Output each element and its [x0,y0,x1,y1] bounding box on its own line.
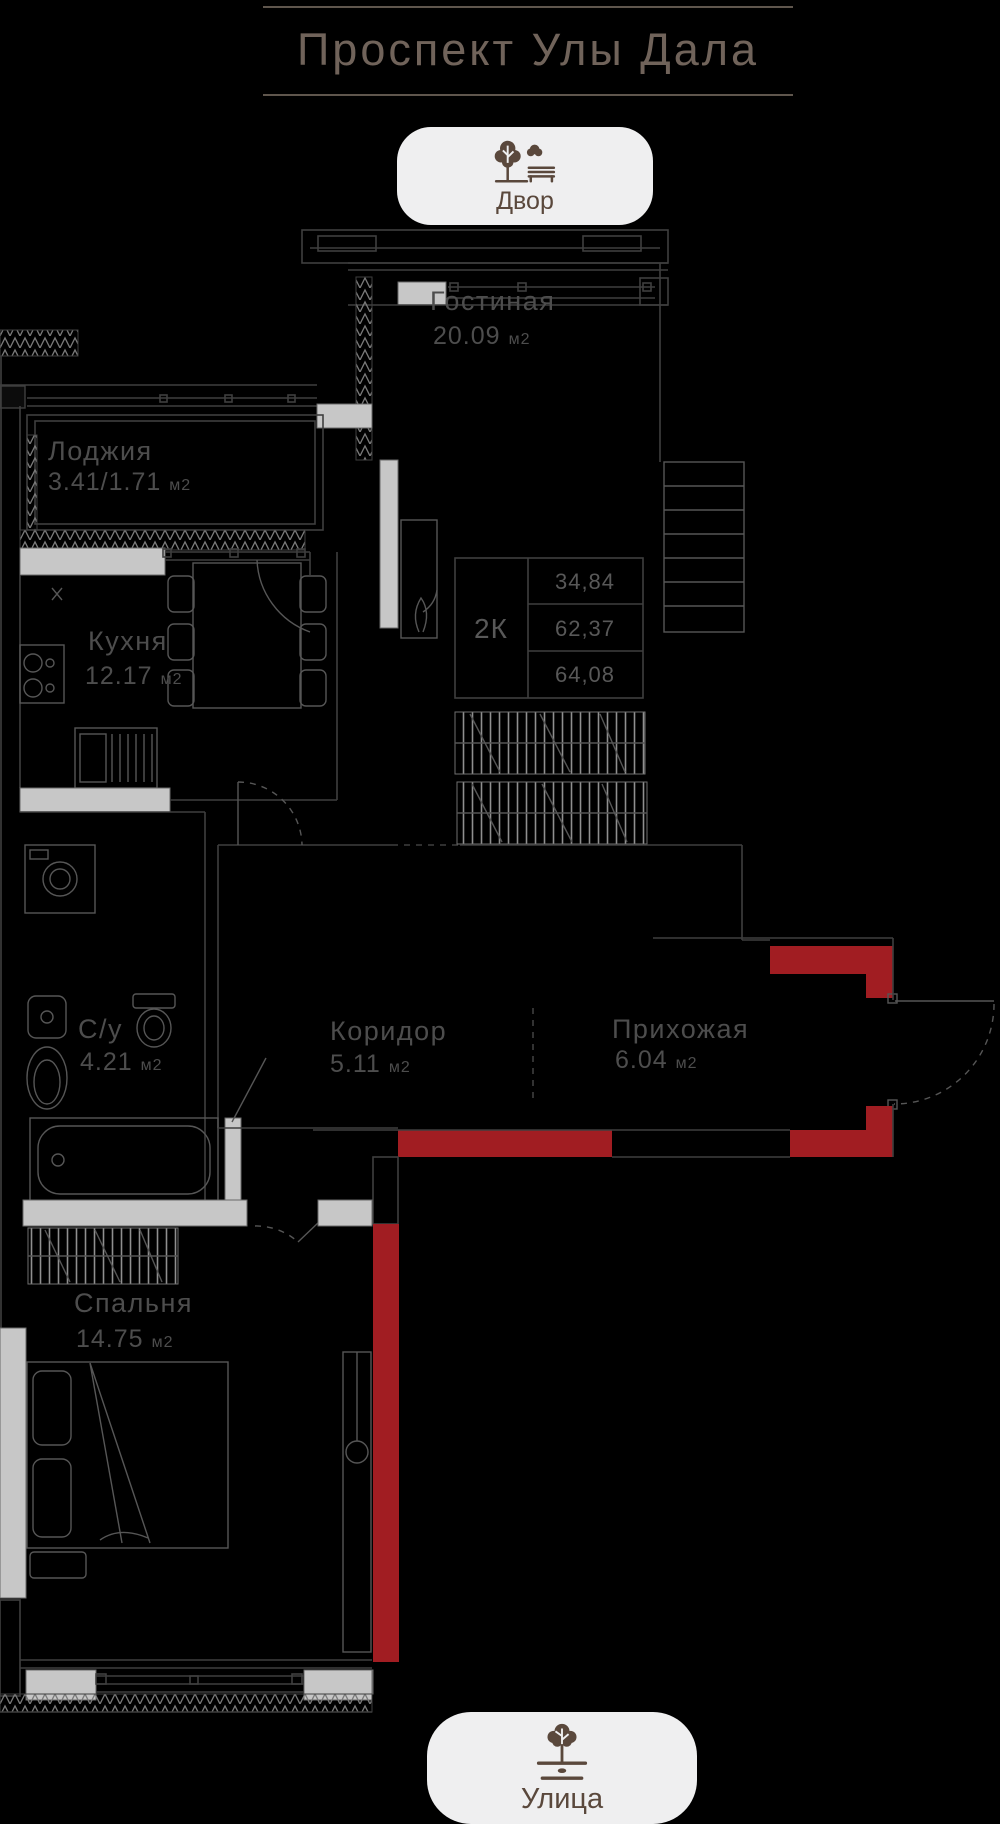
pedestal-sink-icon [27,1047,67,1109]
bathroom-area [20,812,241,1202]
floor-plan: 2К 34,84 62,37 64,08 [0,0,1000,1824]
room-area-kitchen: 12.17м2 [85,662,182,690]
room-label-bath: С/у [78,1014,123,1044]
sink-cabinet [75,728,157,788]
area-value-row3: 64,08 [555,662,615,687]
tv-stand [401,520,437,638]
street-badge: Улица [427,1712,697,1824]
area-value-row2: 62,37 [555,616,615,641]
street-badge-label: Улица [521,1783,603,1816]
entrance-door [888,994,994,1109]
washing-machine-icon [25,845,95,913]
toilet-icon [133,994,175,1047]
bathtub-icon [30,1118,218,1202]
wardrobe-lower [457,782,647,844]
room-label-corridor: Коридор [330,1016,447,1046]
room-area-bedroom: 14.75м2 [76,1325,173,1353]
floorplan-page: Проспект Улы Дала Двор [0,0,1000,1824]
room-label-hall: Прихожая [612,1014,749,1044]
corridor-area [218,782,533,1242]
loggia-area [0,330,372,530]
radiator-column [343,1352,371,1652]
room-label-living: Гостиная [430,286,555,316]
washbasin-icon [28,996,66,1038]
apartment-info-table: 2К 34,84 62,37 64,08 [455,558,643,698]
balcony-top [302,230,668,263]
room-area-loggia: 3.41/1.71м2 [48,468,191,496]
bed-icon [27,1362,228,1548]
kitchen-area [1,356,437,1330]
street-tree-icon [531,1721,593,1781]
room-label-loggia: Лоджия [48,436,153,466]
room-label-bedroom: Спальня [74,1288,193,1318]
wardrobe-upper [455,712,645,774]
hallway-area [313,712,994,1694]
window-mark-icon [52,588,62,600]
room-label-kitchen: Кухня [88,626,168,656]
area-value-row1: 34,84 [555,569,615,594]
bedroom-wardrobe [28,1228,178,1284]
dining-table [193,563,301,708]
stove-icon [20,645,64,703]
room-area-corridor: 5.11м2 [330,1050,411,1078]
apartment-type: 2К [474,613,508,644]
bedside-table [30,1552,86,1578]
room-area-bath: 4.21м2 [80,1048,163,1076]
bedroom-area [0,1200,372,1712]
room-area-living: 20.09м2 [433,322,530,350]
stairwell [664,462,744,632]
room-area-hall: 6.04м2 [615,1046,698,1074]
